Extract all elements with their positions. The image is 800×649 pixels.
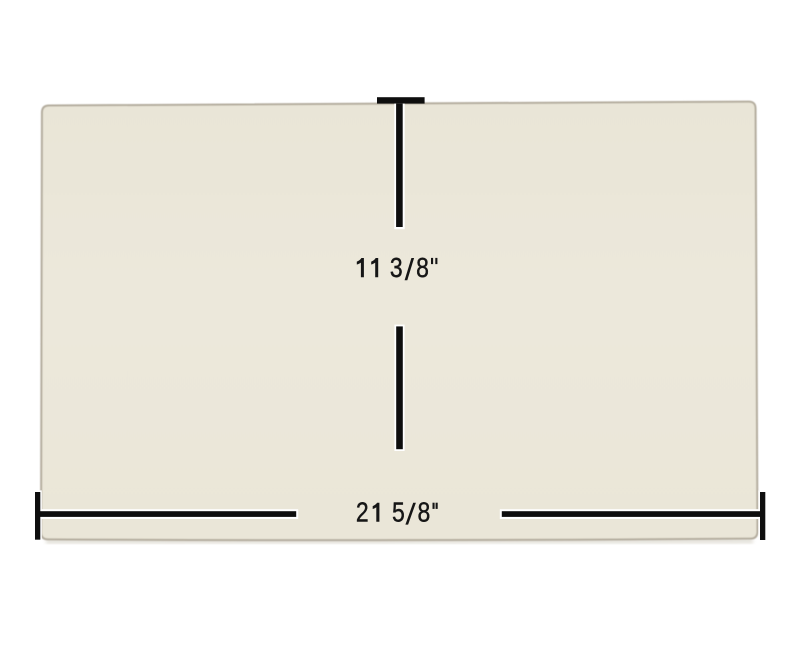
svg-text:2: 2 — [356, 498, 369, 529]
svg-text:8: 8 — [418, 498, 431, 529]
svg-text:3: 3 — [390, 253, 403, 284]
svg-text:5: 5 — [392, 498, 405, 529]
svg-text:8: 8 — [416, 253, 429, 284]
